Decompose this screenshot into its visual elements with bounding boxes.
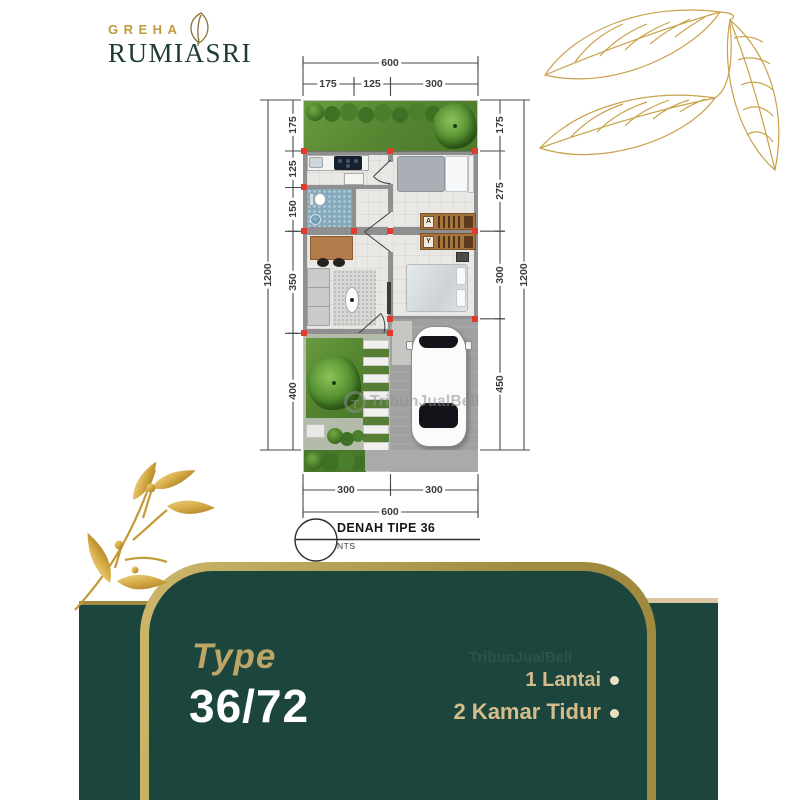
dim-bottom-seg-2: 300: [423, 484, 445, 496]
dim-top-total: 600: [379, 57, 401, 69]
car-mirror: [406, 341, 413, 350]
bed-1: [397, 156, 445, 192]
car-windshield: [419, 336, 458, 348]
dim-top-seg-2: 125: [361, 78, 383, 90]
kitchen-island: [344, 173, 364, 185]
hallway: [356, 189, 388, 227]
column-marker: [301, 184, 307, 190]
bed-2-pillow: [456, 289, 466, 307]
type-value: 36/72: [189, 679, 309, 733]
shrub-row: [306, 103, 324, 121]
stove-icon: [334, 156, 362, 170]
shower-drain-icon: [310, 214, 321, 225]
coffee-table: [345, 287, 359, 313]
column-marker: [472, 228, 478, 234]
car: [411, 326, 467, 447]
plan-scale-note: NTS: [337, 541, 356, 551]
brand-name-top: GREHA: [108, 22, 252, 37]
feature-list: 1 Lantai 2 Kamar Tidur: [389, 669, 619, 732]
watermark-logo-icon: T: [344, 391, 366, 413]
shrub-cluster: [327, 428, 343, 444]
dim-top-seg-3: 300: [423, 78, 445, 90]
dim-right-seg-3: 300: [494, 264, 506, 286]
column-marker: [472, 148, 478, 154]
dim-left-total: 1200: [262, 261, 274, 288]
footer-panel-inner: Type 36/72 1 Lantai 2 Kamar Tidur Tribun…: [149, 571, 647, 800]
feature-bullet-icon: [610, 676, 619, 685]
dining-table: [310, 236, 353, 260]
dim-left-seg-2: 125: [287, 158, 299, 180]
plan-caption-title: DENAH TIPE 36: [337, 521, 435, 535]
column-marker: [387, 228, 393, 234]
front-hedge: [305, 452, 323, 470]
dim-top-seg-1: 175: [317, 78, 339, 90]
kitchen-sink: [309, 157, 323, 168]
dim-right-seg-2: 275: [494, 180, 506, 202]
dim-left-seg-3: 150: [287, 198, 299, 220]
brand-logo: GREHA RUMIASRI: [108, 22, 252, 69]
wardrobe: A: [420, 213, 476, 230]
column-marker: [387, 148, 393, 154]
tree: [433, 103, 477, 149]
feature-floors-label: 1 Lantai: [525, 669, 601, 691]
dim-right-seg-4: 450: [494, 373, 506, 395]
dining-chair: [317, 258, 329, 267]
floorplan-poster: GREHA RUMIASRI: [0, 0, 800, 800]
footer-panel: Type 36/72 1 Lantai 2 Kamar Tidur Tribun…: [140, 562, 656, 800]
gold-leaves-decoration: [535, 0, 800, 175]
dim-left-seg-5: 400: [287, 380, 299, 402]
dim-right-seg-1: 175: [494, 114, 506, 136]
dim-bottom-seg-1: 300: [335, 484, 357, 496]
column-marker: [351, 228, 357, 234]
type-label: Type: [192, 637, 276, 677]
dim-bottom-total: 600: [379, 506, 401, 518]
feature-floors: 1 Lantai: [389, 669, 619, 692]
brand-name-main: RUMIASRI: [108, 38, 252, 69]
watermark-faint: TribunJualBeli: [469, 649, 572, 666]
leaf-icon: [184, 10, 214, 46]
sliding-door: [387, 282, 391, 314]
dim-left-seg-1: 175: [287, 114, 299, 136]
dining-chair: [333, 258, 345, 267]
watermark: T TribunJualBeli: [344, 391, 480, 413]
door-opening: [388, 162, 393, 184]
headboard: [468, 155, 474, 193]
car-mirror: [465, 341, 472, 350]
feature-bedrooms-label: 2 Kamar Tidur: [453, 699, 601, 724]
bed-2-pillow: [456, 267, 466, 285]
wardrobe: Y: [420, 233, 476, 250]
nightstand: [456, 252, 469, 262]
column-marker: [472, 316, 478, 322]
column-marker: [387, 330, 393, 336]
driveway: [365, 450, 478, 471]
sofa: [307, 268, 330, 326]
column-marker: [301, 228, 307, 234]
toilet-bowl: [314, 193, 326, 206]
dim-right-total: 1200: [518, 261, 530, 288]
column-marker: [387, 316, 393, 322]
dim-left-seg-4: 350: [287, 271, 299, 293]
feature-bedrooms: 2 Kamar Tidur: [389, 699, 619, 725]
column-marker: [301, 148, 307, 154]
paver: [306, 424, 325, 438]
bed-1-pillows: [445, 156, 468, 192]
feature-bullet-icon: [610, 709, 619, 718]
column-marker: [301, 330, 307, 336]
